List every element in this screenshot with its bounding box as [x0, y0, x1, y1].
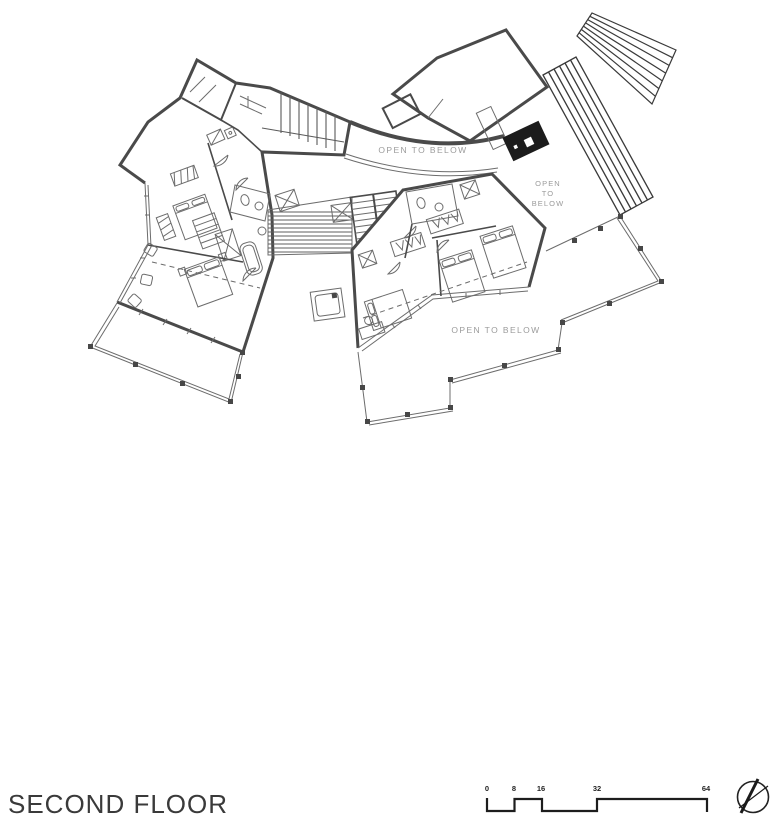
- svg-text:OPEN: OPEN: [535, 179, 561, 188]
- slatted-bridge: [266, 189, 354, 255]
- column-x-box: [331, 203, 353, 223]
- gallery-bridge: OPEN TO BELOW: [344, 122, 504, 176]
- svg-text:16: 16: [537, 784, 545, 793]
- svg-text:64: 64: [702, 784, 711, 793]
- left-wing: [117, 60, 350, 352]
- north-arrow-icon: [738, 779, 769, 813]
- svg-text:32: 32: [593, 784, 601, 793]
- hot-tub: [310, 288, 345, 321]
- svg-text:TO: TO: [542, 189, 554, 198]
- svg-text:8: 8: [512, 784, 516, 793]
- label-open-to-below-courtyard: OPEN TO BELOW: [532, 179, 565, 208]
- svg-text:0: 0: [485, 784, 489, 793]
- scale-bar-ticks: 0 8 16 32 64: [485, 784, 711, 793]
- svg-text:BELOW: BELOW: [532, 199, 565, 208]
- scale-bar: 0 8 16 32 64: [485, 784, 711, 812]
- floor-plan-drawing: OPEN TO BELOW: [0, 0, 780, 835]
- plan-title: SECOND FLOOR: [8, 789, 228, 819]
- label-open-to-below-gallery: OPEN TO BELOW: [378, 145, 467, 155]
- chimney: [476, 106, 507, 149]
- fireplace: [502, 121, 549, 162]
- floor-plan-page: OPEN TO BELOW: [0, 0, 780, 835]
- label-open-to-below-terrace: OPEN TO BELOW: [451, 325, 540, 335]
- column-x-box: [275, 189, 299, 211]
